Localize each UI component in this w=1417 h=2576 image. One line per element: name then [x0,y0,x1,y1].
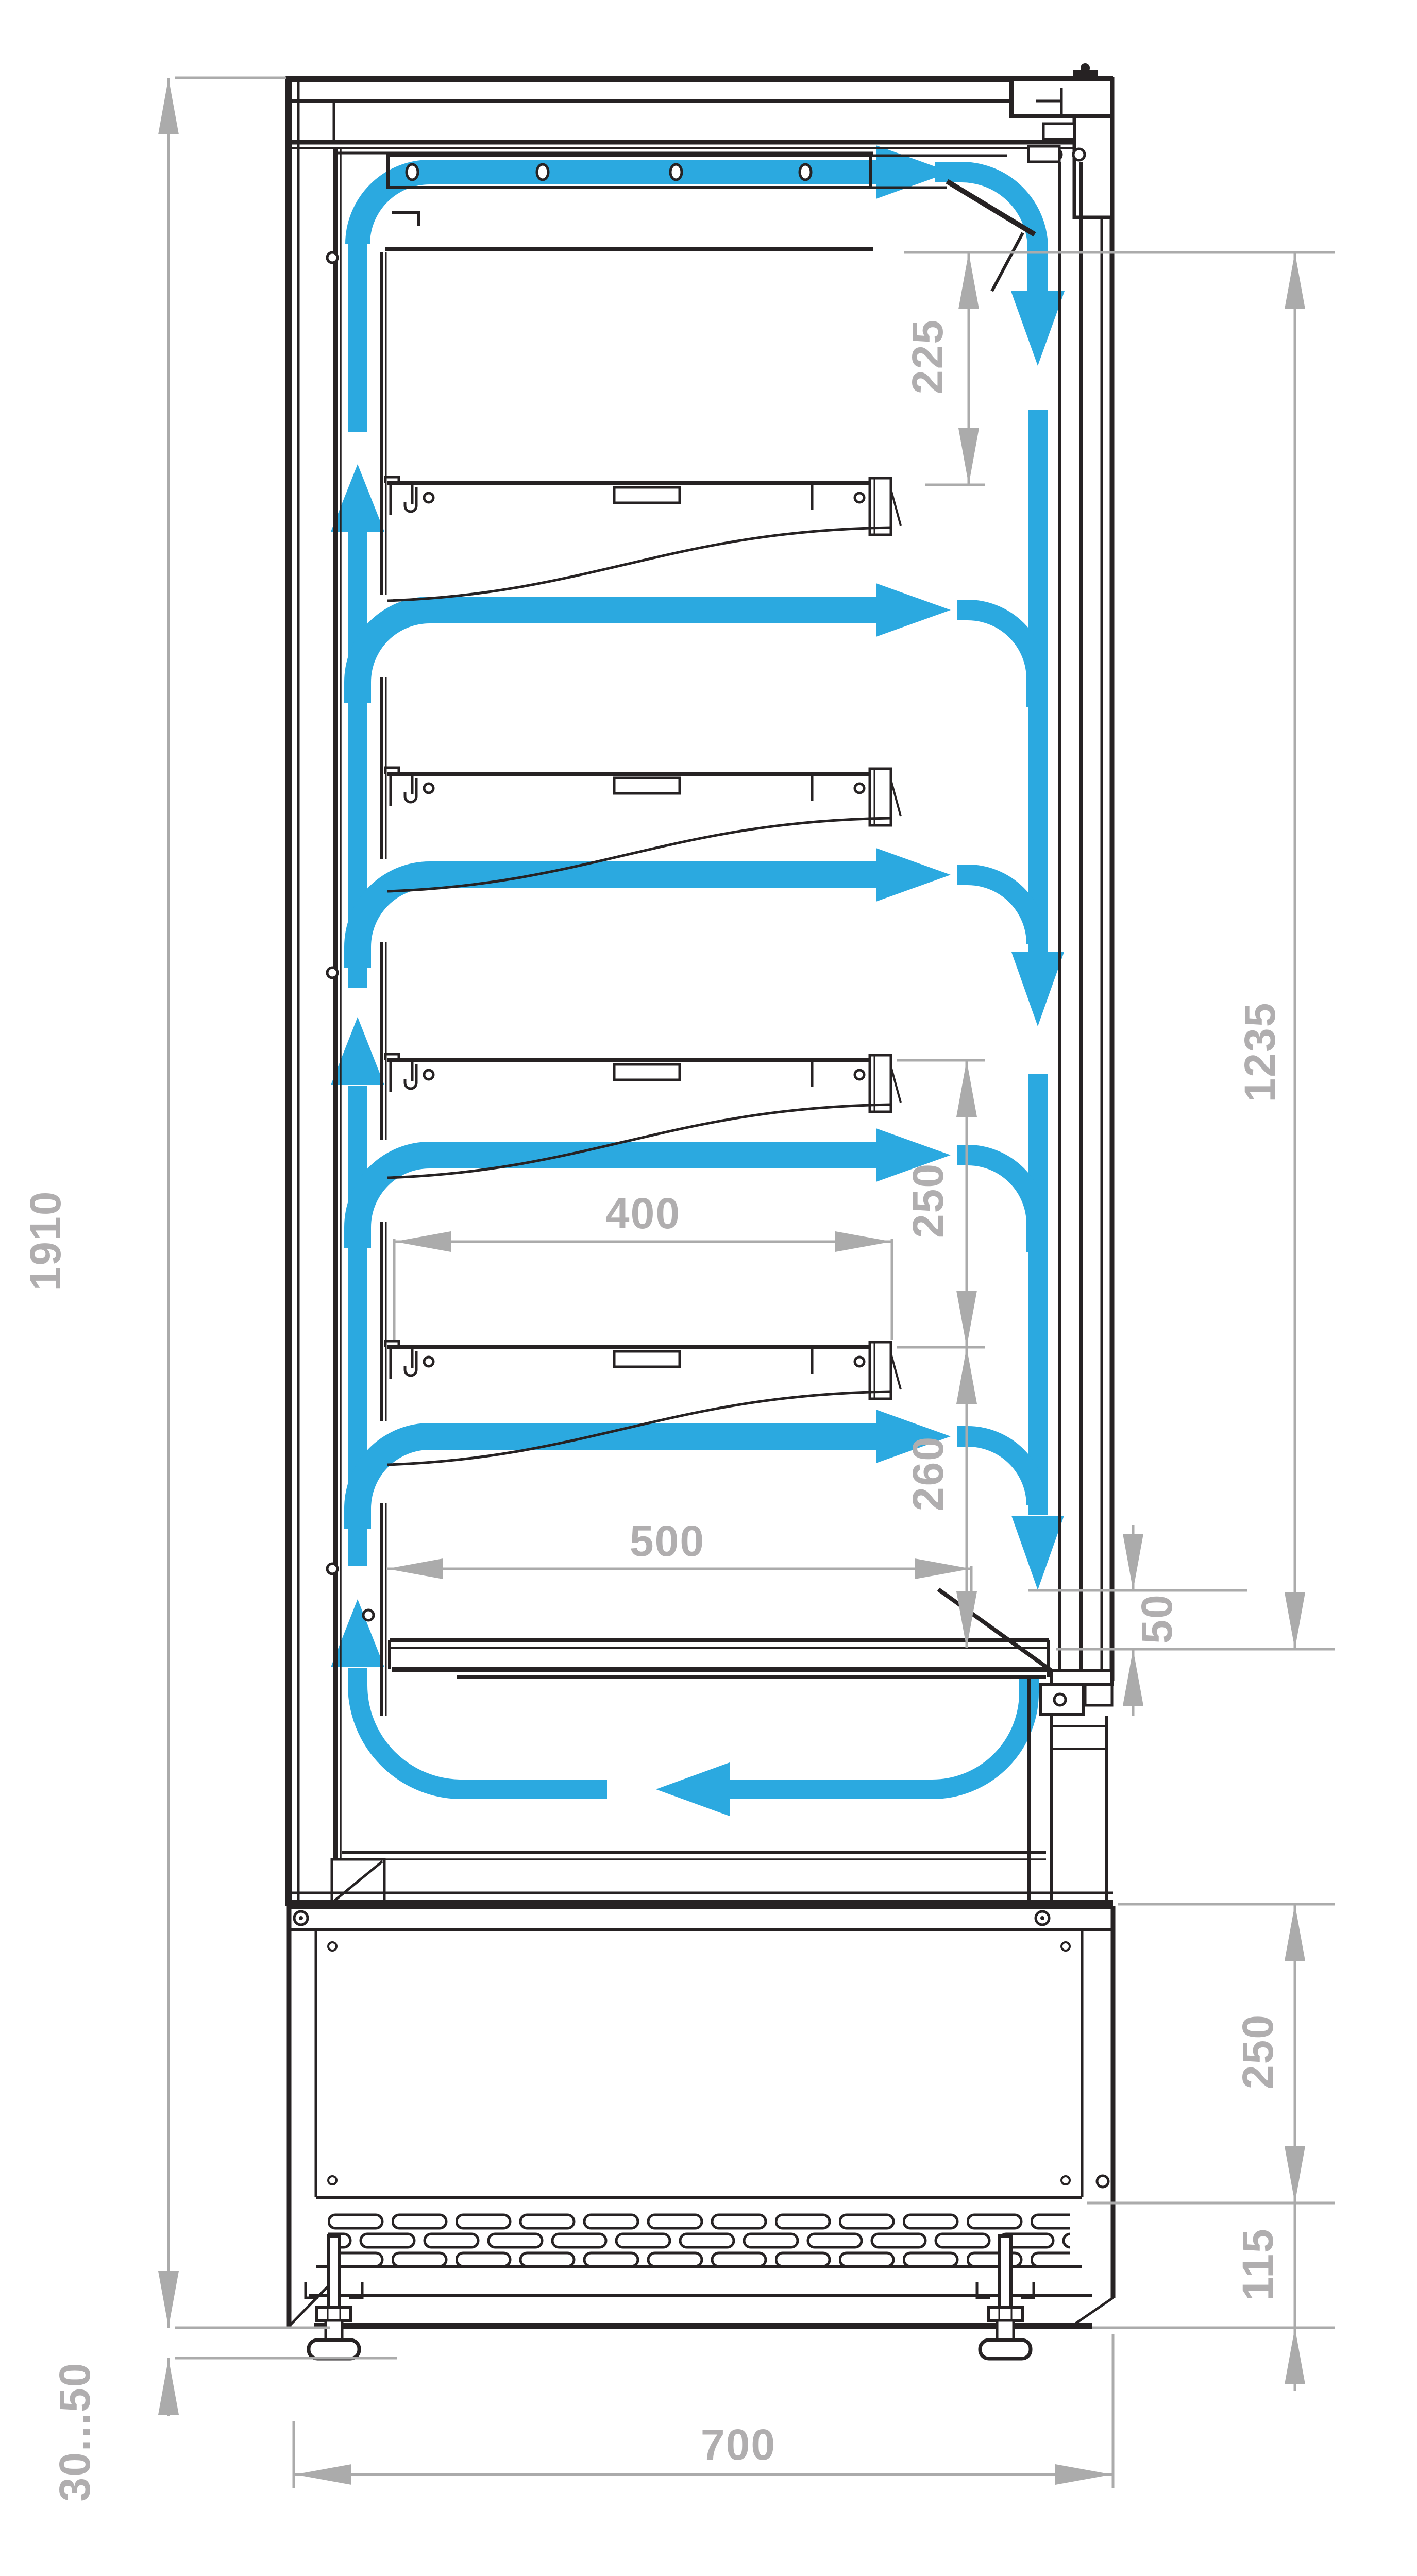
canopy-duct-lines [334,103,873,153]
front-column-ties [1052,1726,1106,1749]
dim-return-air-gap: 50 [1133,1594,1181,1643]
shelf-1 [385,477,901,601]
base-panel-screw-br [1061,2176,1070,2184]
door-bottom-bracket [1085,1685,1112,1705]
arrowhead-down-50 [1123,1534,1143,1590]
dim-deck-depth-group: 500 [386,1517,971,1579]
machine-base [289,1907,1113,2326]
arrowhead-down-225 [958,428,979,485]
door-bottom-hinge-pin [1054,1694,1066,1705]
outlet-hole-4 [800,164,811,180]
hinge-pin-housing [1043,124,1074,139]
airflow-shelf-band-1 [358,610,876,703]
arrowhead-left-700 [295,2464,351,2485]
technical-drawing-canvas: 1910 30...50 225 1235 [0,0,1417,2576]
foot-ball-right [980,2340,1031,2359]
return-air-flap-diagonal [938,1589,1052,1671]
dim-air-curtain-group: 1235 [1236,252,1305,1649]
base-corner-screw-left-center [299,1916,303,1920]
arrowhead-up-250 [956,1060,977,1117]
arrowhead-up-1235 [1285,252,1305,309]
airflow-shelf-branches [358,583,951,1529]
grille-slot-pattern [328,2213,1070,2265]
airflow-return-curve-right [730,1679,1029,1789]
foot-bolt-shaft-left [328,2236,340,2308]
air-deflector-flap [992,233,1023,291]
dim-overall-depth: 700 [701,2420,776,2469]
arrowhead-up-foot-adjust [158,2358,179,2415]
foot-bolt-shaft-right [1000,2236,1011,2308]
airflow-shelf-band-4 [358,1436,876,1529]
arrowhead-up-1910 [158,78,179,134]
outer-frame-lines [285,76,1113,2326]
airflow-merge-curve-2 [957,875,1037,944]
dim-overall-depth-group: 700 [295,2420,1112,2485]
outlet-hole-2 [537,164,548,180]
arrowhead-right-500 [915,1558,971,1579]
airflow-merge-curve-4 [957,1436,1037,1505]
outer-frame-lines-2 [289,77,1113,2328]
foot-lower-shaft-left [326,2320,342,2341]
floor-corner-diagonal [334,1861,382,1901]
airflow-down-arrowhead-bottom [1011,1516,1064,1590]
dim-overall-height: 1910 [21,1191,70,1291]
airflow-canopy-exit-curve [935,172,1038,291]
airflow-right-arrowhead-2 [876,848,951,902]
base-corner-screw-right-center [1040,1916,1044,1920]
door-bottom-sill [1029,1670,1112,1904]
dim-return-gap-group: 50 [1123,1525,1181,1716]
dim-foot-adjust: 30...50 [50,2362,99,2502]
canopy-left-bracket [392,212,418,226]
cabinet-structure [285,63,1113,2359]
back-wall-screw-3 [327,1564,338,1574]
door-sill-profile [1051,1670,1112,1685]
arrowhead-up-260 [956,1347,977,1404]
door-glass-top-holder [1028,146,1059,162]
foot-hex-nut-left [317,2307,351,2320]
dim-foot-adjust-group: 30...50 [50,2358,179,2501]
foot-lower-shaft-right [997,2320,1014,2341]
dim-air-curtain-height: 1235 [1236,1002,1284,1103]
cabinet-floor [289,1852,1113,1903]
airflow-down-arrowhead-mid1 [1011,952,1064,1026]
airflow-canopy-band [358,172,876,244]
dim-base-group: 250 115 [1234,1904,1305,2391]
dim-base-front-height: 250 [1234,2014,1282,2089]
airflow-merge-curve-3 [957,1155,1037,1252]
arrowhead-left-400 [394,1231,451,1252]
hinge-roller-2 [1073,149,1085,160]
dim-deck-depth: 500 [630,1517,705,1565]
dim-bottom-shelf-to-deck: 260 [904,1436,952,1511]
arrowhead-up-225 [958,252,979,309]
base-panel-screw-tr [1061,1942,1070,1951]
dim-top-clearance: 225 [903,319,952,394]
canopy [289,101,1113,291]
foot-ball-left [309,2340,359,2359]
dim-vent-grille-height: 115 [1234,2228,1282,2301]
foot-hex-nut-right [988,2307,1022,2320]
dim-shelf-spacing: 250 [904,1163,952,1238]
dim-top-clearance-group: 225 [903,252,979,485]
dim-shelf-depth: 400 [605,1189,681,1238]
airflow-up-arrowhead-upper [331,464,384,532]
arrowhead-up-50 [1123,1649,1143,1706]
hinge-pin-top [1081,63,1090,73]
base-right-screw [1097,2176,1108,2187]
airflow-right-arrowhead-1 [876,583,951,637]
arrowhead-down-base250 [1285,2146,1305,2203]
arrowhead-right-700 [1055,2464,1112,2485]
arrowhead-down-1235 [1285,1592,1305,1649]
arrowhead-up-base250 [1285,1904,1305,1961]
back-wall-screw-2 [327,968,338,978]
airflow-merge-curve-1 [957,610,1037,707]
back-panel-screw [363,1610,374,1620]
airflow-down-arrowhead-top [1011,291,1065,366]
dim-overall-height-group: 1910 [21,78,179,2328]
back-wall-screw-1 [327,252,338,263]
airflow-up-arrowhead-lower [331,1599,384,1667]
base-panel-side-lines [316,1929,1082,2197]
arrowhead-up-115 [1285,2328,1305,2384]
product-deck [390,1589,1052,1677]
back-duct-walls [298,79,386,1904]
outlet-hole-1 [407,164,418,180]
airflow-up-arrowhead-mid [331,1017,384,1085]
outlet-hole-3 [670,164,682,180]
dimension-annotations: 1910 30...50 225 1235 [21,78,1335,2501]
arrowhead-right-400 [835,1231,892,1252]
base-panel-screw-bl [328,2176,336,2184]
arrowhead-down-1910 [158,2271,179,2328]
airflow-return-curve-left [358,1668,607,1789]
arrowhead-left-500 [386,1558,443,1579]
base-panel-screw-tl [328,1942,336,1951]
arrowhead-down-250 [956,1291,977,1347]
dim-shelf-depth-group: 400 [394,1189,892,1252]
airflow-left-arrowhead-return [656,1762,730,1816]
